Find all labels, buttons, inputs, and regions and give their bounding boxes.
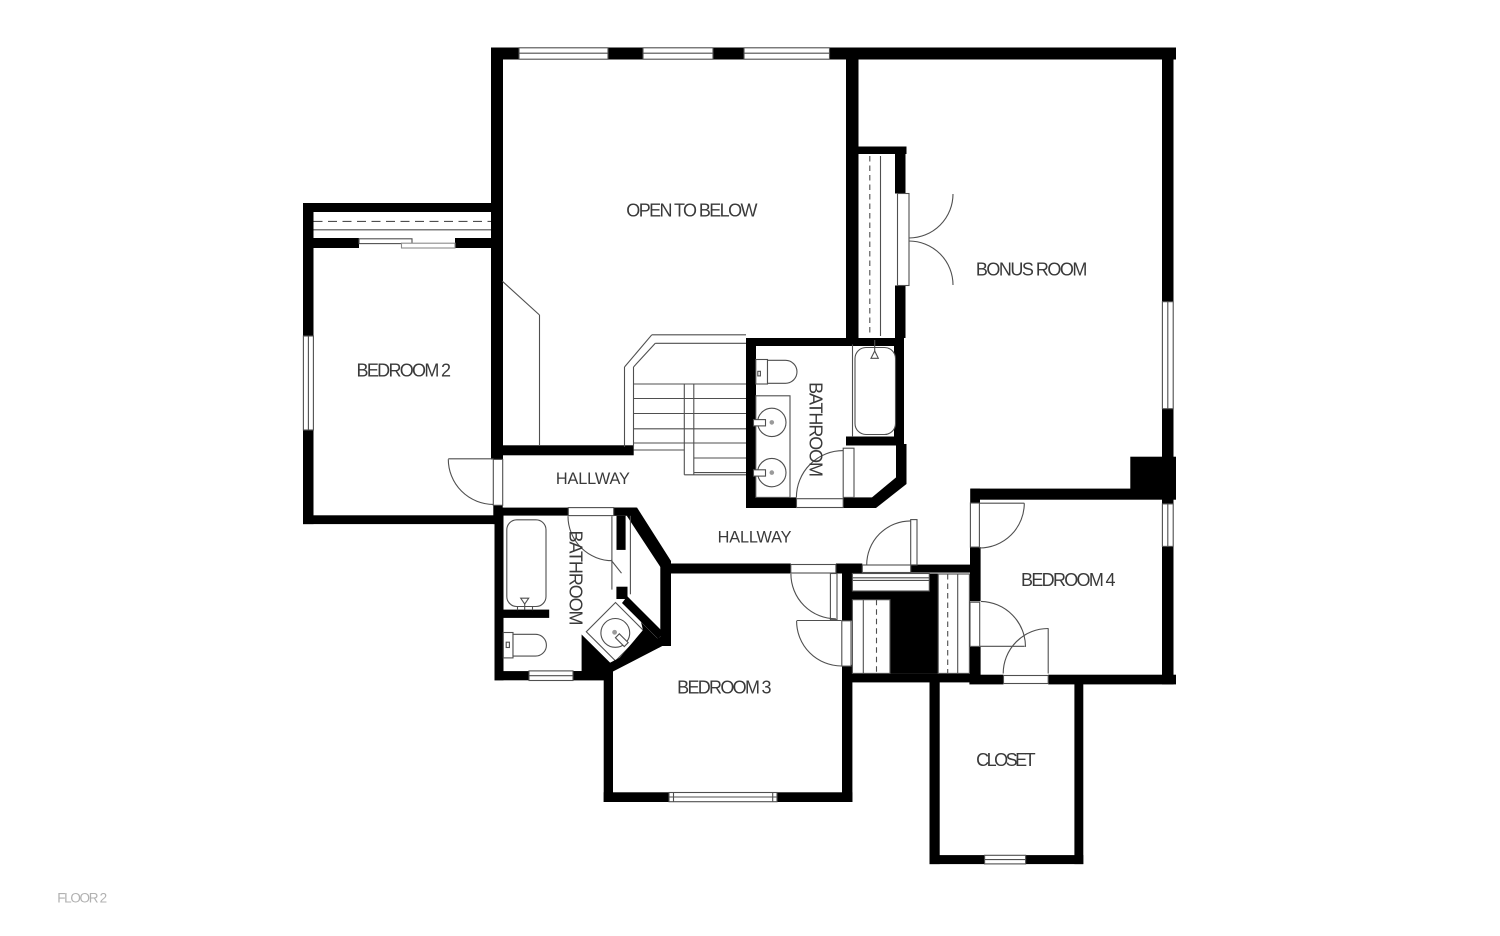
svg-text:BATHROOM: BATHROOM bbox=[805, 382, 825, 476]
svg-text:BATHROOM: BATHROOM bbox=[565, 531, 585, 625]
svg-text:HALLWAY: HALLWAY bbox=[718, 529, 792, 547]
svg-text:BONUS ROOM: BONUS ROOM bbox=[976, 260, 1087, 280]
svg-text:BEDROOM 4: BEDROOM 4 bbox=[1021, 570, 1115, 590]
svg-text:HALLWAY: HALLWAY bbox=[556, 470, 630, 488]
svg-text:CLOSET: CLOSET bbox=[976, 750, 1036, 770]
svg-text:BEDROOM 3: BEDROOM 3 bbox=[677, 678, 771, 698]
svg-text:OPEN TO BELOW: OPEN TO BELOW bbox=[626, 200, 757, 220]
svg-text:FLOOR 2: FLOOR 2 bbox=[57, 891, 106, 906]
svg-text:BEDROOM 2: BEDROOM 2 bbox=[357, 361, 451, 381]
